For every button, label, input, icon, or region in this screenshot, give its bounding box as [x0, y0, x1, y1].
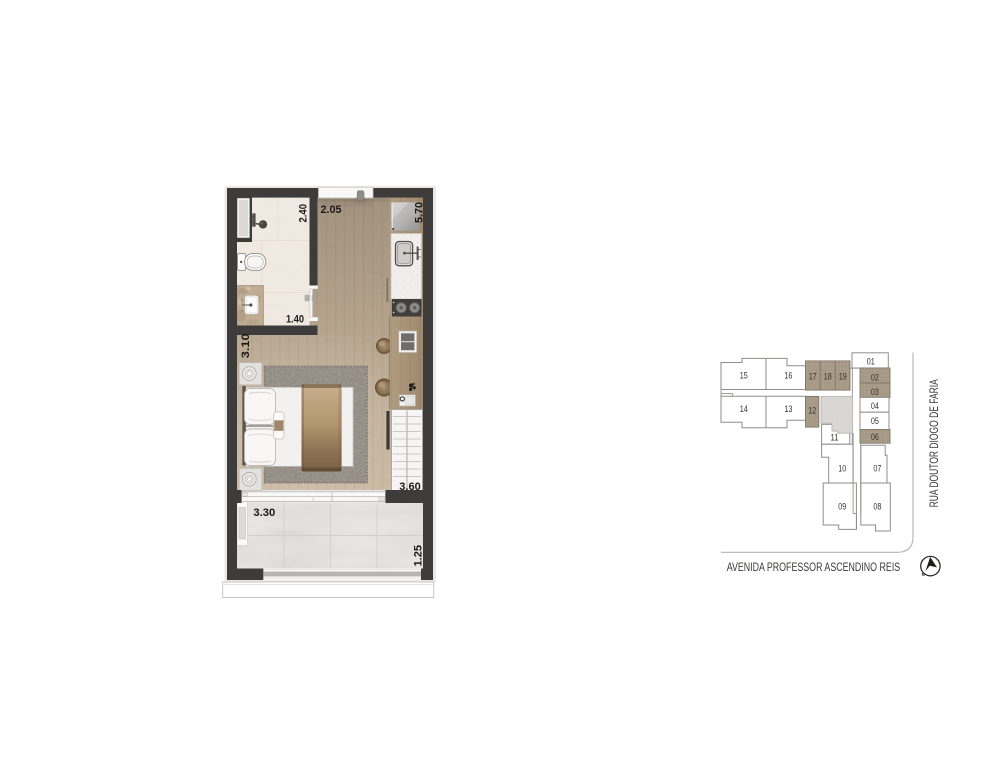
svg-text:15: 15	[740, 371, 748, 382]
svg-text:02: 02	[871, 373, 879, 384]
svg-text:07: 07	[873, 464, 881, 475]
svg-text:1.25: 1.25	[412, 545, 424, 567]
svg-text:19: 19	[839, 372, 847, 383]
svg-text:17: 17	[809, 372, 817, 383]
svg-text:3.10: 3.10	[240, 333, 252, 358]
svg-text:3.60: 3.60	[399, 481, 421, 493]
svg-text:05: 05	[871, 416, 879, 427]
svg-text:1.40: 1.40	[286, 314, 304, 326]
svg-text:5.70: 5.70	[414, 202, 426, 223]
svg-text:06: 06	[871, 432, 879, 443]
svg-text:10: 10	[838, 464, 846, 475]
svg-text:03: 03	[871, 387, 879, 398]
svg-text:12: 12	[808, 406, 816, 417]
svg-text:14: 14	[740, 404, 748, 415]
svg-text:2.40: 2.40	[298, 204, 310, 223]
svg-text:2.05: 2.05	[321, 204, 342, 216]
svg-text:RUA DOUTOR DIOGO DE FARIA: RUA DOUTOR DIOGO DE FARIA	[927, 379, 941, 508]
svg-text:09: 09	[838, 502, 846, 513]
svg-text:N: N	[922, 572, 925, 577]
svg-text:16: 16	[784, 371, 792, 382]
svg-text:AVENIDA PROFESSOR ASCENDINO RE: AVENIDA PROFESSOR ASCENDINO REIS	[727, 560, 901, 574]
svg-text:13: 13	[784, 404, 792, 415]
svg-text:04: 04	[871, 401, 879, 412]
svg-text:18: 18	[824, 372, 832, 383]
svg-text:01: 01	[867, 357, 875, 368]
svg-text:3.30: 3.30	[253, 507, 275, 519]
svg-text:11: 11	[831, 432, 839, 443]
svg-text:08: 08	[873, 502, 881, 513]
